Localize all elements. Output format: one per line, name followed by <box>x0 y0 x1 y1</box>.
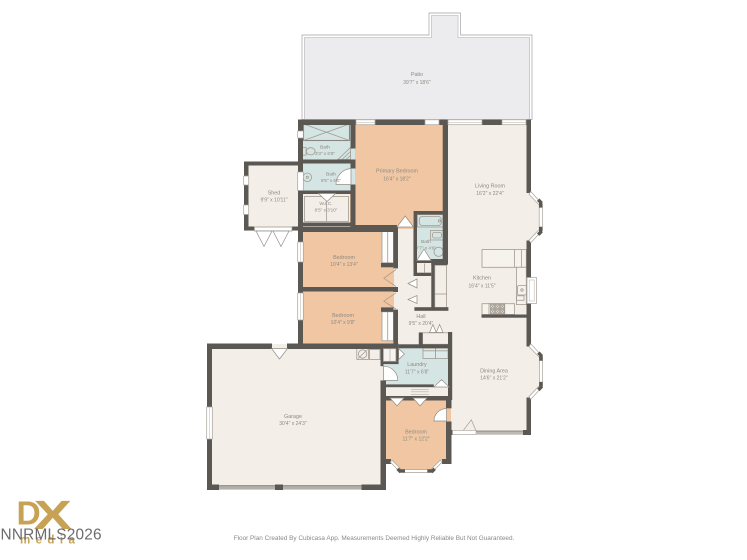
svg-text:10'4" x 13'4": 10'4" x 13'4" <box>330 262 358 268</box>
svg-text:30'4" x 24'3": 30'4" x 24'3" <box>279 421 307 427</box>
svg-text:Bath: Bath <box>326 172 336 178</box>
svg-text:Hall: Hall <box>416 314 425 320</box>
svg-text:Laundry: Laundry <box>407 362 427 368</box>
svg-text:9'9" x 10'11": 9'9" x 10'11" <box>260 198 287 204</box>
svg-text:Floor Plan Created By Cubicasa: Floor Plan Created By Cubicasa App. Meas… <box>234 535 515 542</box>
svg-text:16'4" x 11'5": 16'4" x 11'5" <box>468 284 495 290</box>
svg-text:11'7" x 6'8": 11'7" x 6'8" <box>405 370 429 376</box>
svg-text:Kitchen: Kitchen <box>473 276 491 282</box>
svg-text:W.I.C.: W.I.C. <box>319 201 332 207</box>
svg-text:3'3" x 6'8": 3'3" x 6'8" <box>315 151 335 156</box>
svg-text:Bedroom: Bedroom <box>332 313 354 319</box>
svg-text:Dining Area: Dining Area <box>480 369 508 375</box>
svg-text:16'2" x 22'4": 16'2" x 22'4" <box>476 191 504 197</box>
svg-text:39'7" x 18'6": 39'7" x 18'6" <box>403 80 431 86</box>
svg-text:Bath: Bath <box>421 239 431 245</box>
svg-text:NNRMLS2026: NNRMLS2026 <box>1 527 102 544</box>
svg-text:Primary Bedroom: Primary Bedroom <box>376 169 418 175</box>
svg-text:8'5" x 6'0": 8'5" x 6'0" <box>321 178 341 183</box>
svg-text:7'7" x 4'6": 7'7" x 4'6" <box>416 246 436 251</box>
svg-text:9'5" x 20'4": 9'5" x 20'4" <box>409 321 434 327</box>
svg-text:Living Room: Living Room <box>475 184 505 190</box>
svg-text:Shed: Shed <box>268 191 281 197</box>
svg-text:11'7" x 12'2": 11'7" x 12'2" <box>402 437 429 443</box>
svg-text:Bedroom: Bedroom <box>405 430 427 436</box>
svg-text:Garage: Garage <box>284 414 302 420</box>
svg-text:14'6" x 21'2": 14'6" x 21'2" <box>480 376 508 382</box>
svg-text:Bedroom: Bedroom <box>333 255 355 261</box>
svg-text:10'4" x 9'8": 10'4" x 9'8" <box>331 320 356 326</box>
svg-text:Patio: Patio <box>411 72 423 78</box>
svg-text:8'5" x 3'10": 8'5" x 3'10" <box>315 208 338 213</box>
svg-text:16'4" x 18'2": 16'4" x 18'2" <box>383 177 411 183</box>
svg-text:Bath: Bath <box>320 145 330 151</box>
